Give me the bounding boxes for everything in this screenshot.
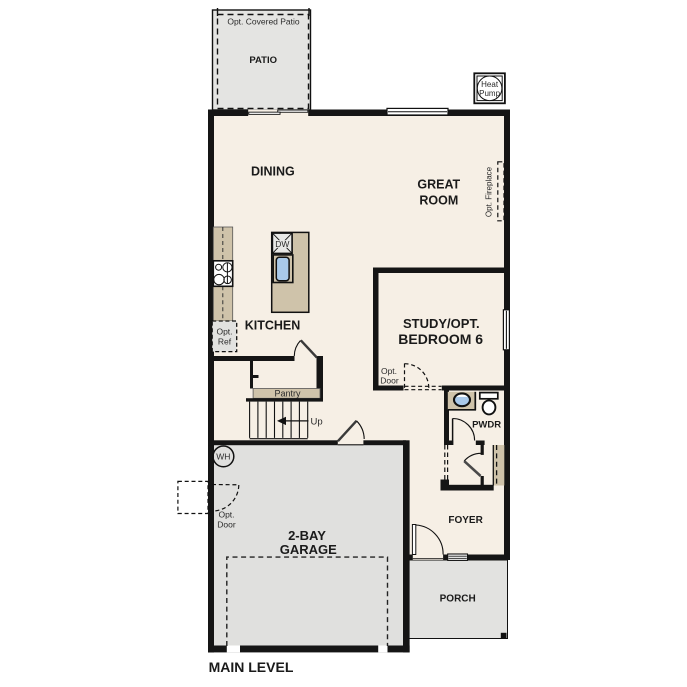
svg-text:PATIO: PATIO [249,55,277,66]
svg-text:KITCHEN: KITCHEN [245,319,301,333]
svg-text:WH: WH [216,451,230,461]
svg-text:DW: DW [275,239,289,249]
svg-text:Pantry: Pantry [274,388,301,398]
svg-text:Up: Up [311,416,323,427]
svg-text:2-BAY: 2-BAY [288,528,326,543]
svg-text:Pump: Pump [479,89,500,98]
svg-text:Opt.: Opt. [381,366,397,376]
svg-text:Door: Door [380,375,399,385]
svg-text:DINING: DINING [251,164,295,178]
svg-text:Opt.: Opt. [216,327,232,337]
svg-text:Opt.: Opt. [218,510,234,520]
svg-text:STUDY/OPT.: STUDY/OPT. [403,316,480,331]
svg-text:GARAGE: GARAGE [280,542,337,557]
svg-text:Door: Door [217,520,236,530]
svg-text:PWDR: PWDR [472,419,501,430]
svg-text:PORCH: PORCH [440,594,476,605]
svg-text:BEDROOM 6: BEDROOM 6 [398,331,483,347]
svg-text:Heat: Heat [481,80,499,89]
svg-text:MAIN LEVEL: MAIN LEVEL [209,659,294,675]
svg-text:ROOM: ROOM [419,194,458,208]
svg-text:GREAT: GREAT [417,177,460,191]
svg-text:Ref: Ref [218,337,232,347]
svg-text:Opt. Covered Patio: Opt. Covered Patio [227,17,300,27]
svg-text:Opt. Fireplace: Opt. Fireplace [485,166,494,217]
svg-text:FOYER: FOYER [448,515,483,526]
